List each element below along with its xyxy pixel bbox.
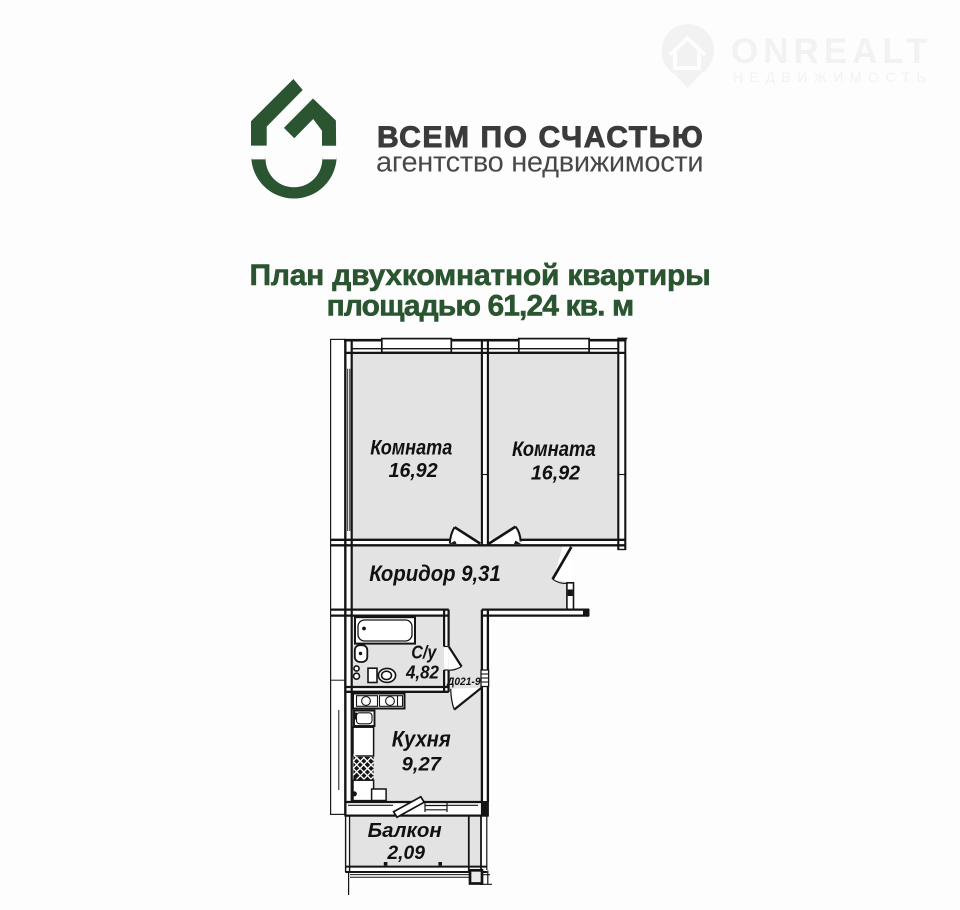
svg-text:9,27: 9,27 (402, 754, 442, 776)
svg-text:Кухня: Кухня (392, 727, 451, 752)
svg-text:План двухкомнатной квартиры: План двухкомнатной квартиры (249, 259, 710, 292)
svg-text:Комната: Комната (370, 436, 452, 460)
svg-text:16,92: 16,92 (531, 461, 581, 484)
svg-text:С/у: С/у (411, 643, 437, 663)
svg-text:Комната: Комната (512, 437, 596, 461)
svg-text:площадью 61,24 кв. м: площадью 61,24 кв. м (327, 290, 634, 323)
svg-text:4,82: 4,82 (405, 663, 439, 683)
svg-text:Балкон: Балкон (368, 819, 442, 842)
svg-text:16,92: 16,92 (389, 459, 439, 482)
svg-text:НЕДВИЖИМОСТЬ: НЕДВИЖИМОСТЬ (733, 69, 932, 85)
svg-text:ONREALT: ONREALT (731, 32, 933, 71)
svg-text:Коридор 9,31: Коридор 9,31 (369, 561, 501, 586)
svg-text:агентство недвижимости: агентство недвижимости (376, 147, 703, 179)
svg-text:2,09: 2,09 (386, 843, 425, 864)
svg-text:Д021-9: Д021-9 (446, 676, 481, 688)
